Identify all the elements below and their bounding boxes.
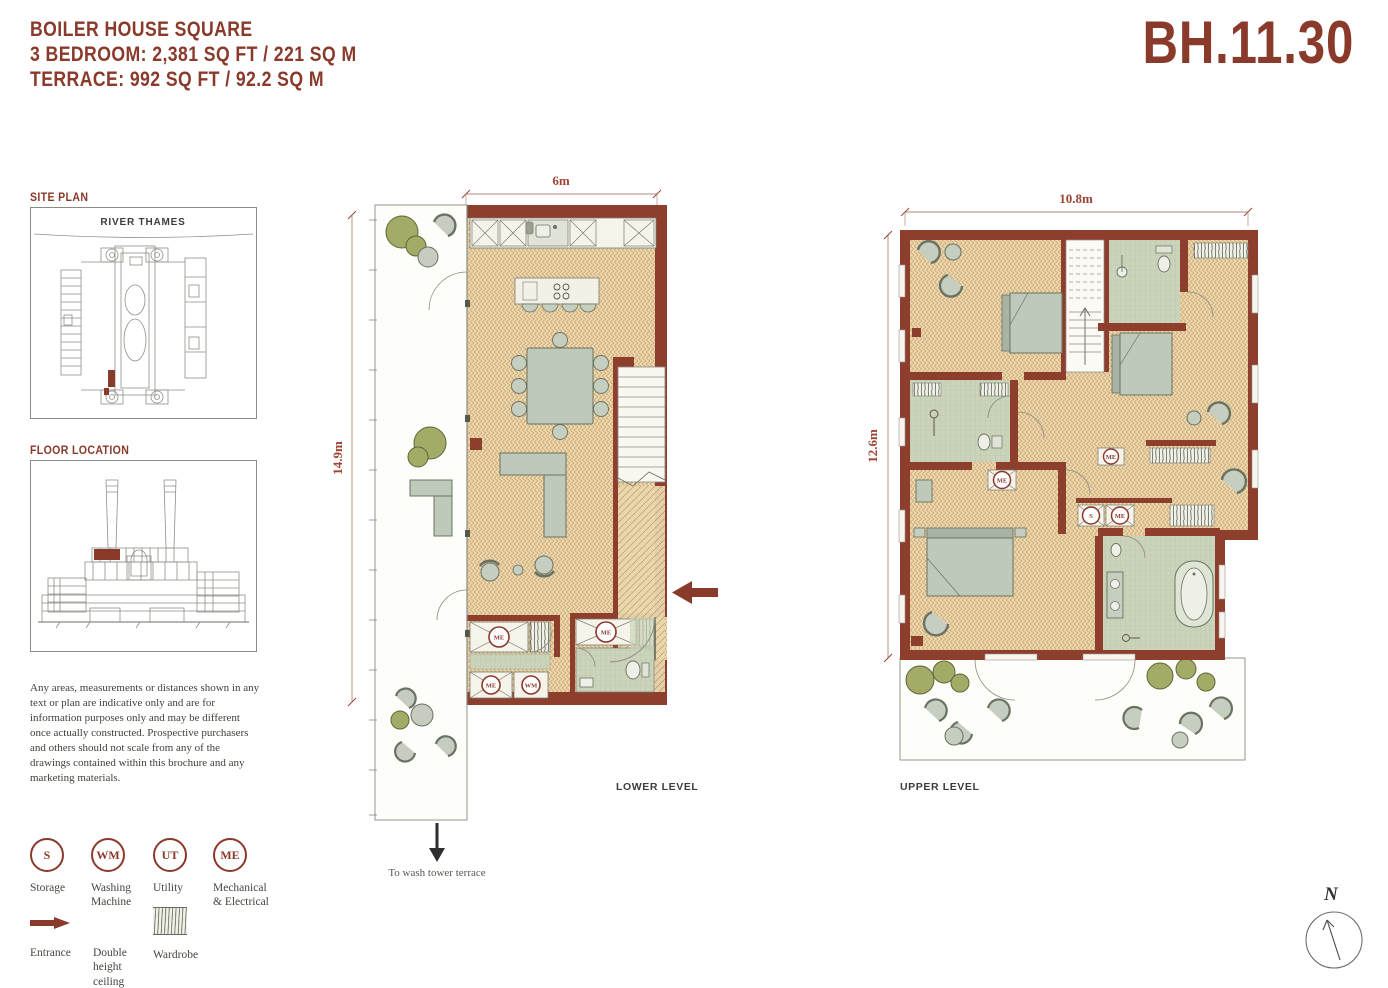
unit-location-marker <box>108 370 115 387</box>
lower-apartment: ME ME WM ME <box>465 205 667 705</box>
bed-2 <box>1112 333 1172 395</box>
bathroom-1 <box>910 380 1010 462</box>
upper-terrace <box>900 658 1245 760</box>
brochure-page: BOILER HOUSE SQUARE 3 BEDROOM: 2,381 SQ … <box>0 0 1388 988</box>
bathtub <box>1175 561 1213 627</box>
upper-level-floorplan: 10.8m 12.6m <box>850 180 1280 820</box>
legend-mechanical: ME Mechanical & Electrical <box>213 838 283 910</box>
svg-text:ME: ME <box>1106 454 1116 461</box>
svg-text:S: S <box>1089 513 1093 520</box>
bed-1 <box>1002 293 1062 353</box>
wm-marker: WM <box>522 676 540 694</box>
lower-level-floorplan: 6m 14.9m <box>330 160 730 900</box>
svg-text:10.8m: 10.8m <box>1059 191 1093 206</box>
wardrobe-hatch-icon <box>153 907 187 935</box>
me-marker: ME <box>596 622 616 642</box>
column <box>470 438 482 450</box>
north-compass: N <box>1293 872 1383 982</box>
svg-text:14.9m: 14.9m <box>330 441 345 475</box>
lower-height-dimension: 14.9m <box>330 211 356 706</box>
header-block: BOILER HOUSE SQUARE 3 BEDROOM: 2,381 SQ … <box>30 18 357 92</box>
upper-height-dimension: 12.6m <box>865 231 892 662</box>
floor-location-elevation <box>30 460 257 652</box>
me-marker: ME <box>988 470 1016 490</box>
north-label: N <box>1323 884 1339 905</box>
unit-code: BH.11.30 <box>1142 8 1354 77</box>
wash-tower-note: To wash tower terrace <box>388 867 485 879</box>
upper-apartment: ME ME S ME <box>899 230 1258 660</box>
me-marker: ME <box>1106 505 1134 526</box>
lower-width-dimension: 6m <box>462 173 661 206</box>
s-marker: S <box>1078 505 1104 526</box>
upper-level-caption: UPPER LEVEL <box>900 781 980 793</box>
utility-icon: UT <box>153 838 187 872</box>
lower-terrace <box>369 205 467 820</box>
kitchen-island <box>515 278 599 312</box>
staircase <box>1061 240 1109 372</box>
river-thames-label: RIVER THAMES <box>100 217 185 228</box>
svg-text:12.6m: 12.6m <box>865 429 880 463</box>
storage-icon: S <box>30 838 64 872</box>
svg-text:ME: ME <box>601 630 611 637</box>
upper-width-dimension: 10.8m <box>901 191 1252 226</box>
svg-text:6m: 6m <box>552 173 570 188</box>
entrance-arrow <box>672 581 718 604</box>
svg-text:ME: ME <box>1115 513 1125 520</box>
floor-location-title: FLOOR LOCATION <box>30 443 129 457</box>
floor-marker <box>94 549 120 560</box>
entrance-arrow-icon <box>30 917 72 929</box>
compass-needle <box>1323 920 1340 960</box>
site-plan-map: RIVER THAMES <box>30 207 257 419</box>
wardrobe <box>1170 505 1214 526</box>
project-name: BOILER HOUSE SQUARE <box>30 18 357 43</box>
vanity <box>1107 572 1123 618</box>
legend-wardrobe: Wardrobe <box>153 905 223 962</box>
svg-text:ME: ME <box>486 683 496 690</box>
legend-washing-machine: WM Washing Machine <box>91 838 161 910</box>
legend-storage: S Storage <box>30 838 100 895</box>
legend-entrance: Entrance <box>30 908 100 960</box>
svg-text:ME: ME <box>494 635 504 642</box>
spec-line: 3 BEDROOM: 2,381 SQ FT / 221 SQ M <box>30 43 357 68</box>
terrace-line: TERRACE: 992 SQ FT / 92.2 SQ M <box>30 68 357 93</box>
me-marker: ME <box>1098 448 1124 465</box>
me-marker: ME <box>482 676 500 694</box>
washing-machine-icon: WM <box>91 838 125 872</box>
wardrobe <box>1194 243 1248 258</box>
me-marker: ME <box>489 627 509 647</box>
master-bathroom <box>1103 536 1215 650</box>
svg-text:WM: WM <box>525 683 538 690</box>
svg-text:ME: ME <box>997 478 1007 485</box>
lower-level-caption: LOWER LEVEL <box>616 781 698 793</box>
site-plan-title: SITE PLAN <box>30 190 88 204</box>
bed-3 <box>927 528 1013 596</box>
mechanical-electrical-icon: ME <box>213 838 247 872</box>
wash-tower-arrow <box>429 823 445 862</box>
wardrobe <box>1150 448 1210 463</box>
disclaimer-text: Any areas, measurements or distances sho… <box>30 681 262 786</box>
kitchen-counter <box>470 218 656 248</box>
